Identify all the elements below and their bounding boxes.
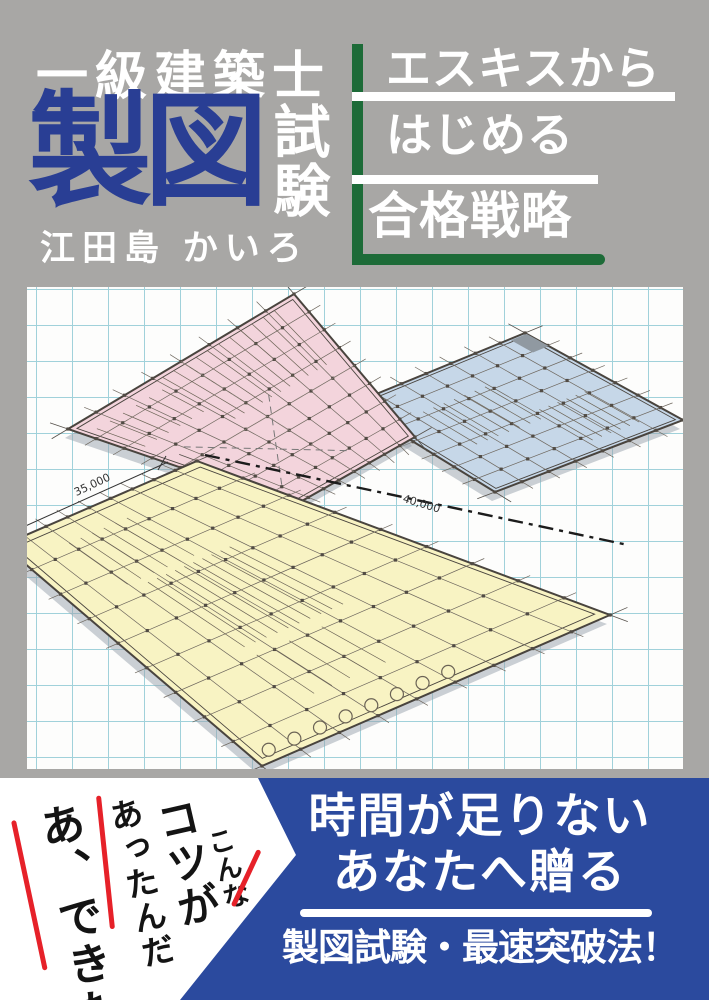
tagline-line-2: はじめる: [386, 112, 574, 158]
banner-bottom-line: 製図試験・最速突破法！: [255, 929, 705, 966]
floor-plans-drawing: [27, 287, 683, 769]
tagline-underline-2: [352, 175, 598, 184]
book-cover: 一級建築士 製図 試験 江田島 かいろ エスキスから はじめる 合格戦略 35,…: [0, 0, 709, 1000]
tagline-line-1: エスキスから: [386, 46, 661, 91]
author-name: 江田島 かいろ: [40, 220, 309, 271]
main-title: 製図: [28, 90, 260, 214]
tagline-line-3: 合格戦略: [368, 191, 572, 241]
banner-divider: [300, 909, 652, 917]
banner-text-block: 時間が足りない あなたへ贈る 製図試験・最速突破法！: [255, 778, 705, 1000]
green-bracket-vertical: [352, 44, 363, 265]
banner-line-2: あなたへ贈る: [255, 848, 705, 895]
banner-line-1: 時間が足りない: [255, 792, 705, 839]
tagline-underline-1: [352, 92, 675, 101]
green-bracket-horizontal: [352, 254, 605, 265]
bottom-banner: こんな コツが あったんだ あ、できた 時間が足りない あなたへ贈る 製図試験・…: [0, 778, 709, 1000]
grid-paper: 35,000 40,000: [27, 287, 683, 769]
main-title-suffix: 試験: [268, 102, 325, 220]
